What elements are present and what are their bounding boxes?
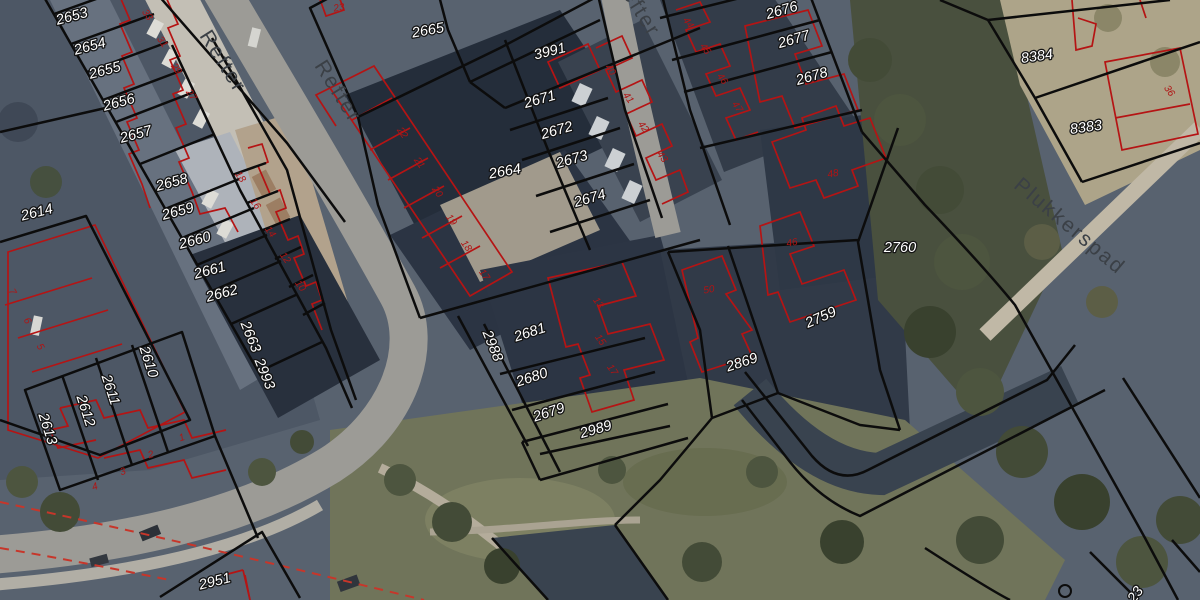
house-number-23: 23 (332, 2, 346, 15)
cadastral-map-svg: RefterRefterRefterPlukkerspad 2221201918… (0, 0, 1200, 600)
parcel-label-2760: 2760 (883, 240, 916, 256)
map-viewport[interactable]: RefterRefterRefterPlukkerspad 2221201918… (0, 0, 1200, 600)
